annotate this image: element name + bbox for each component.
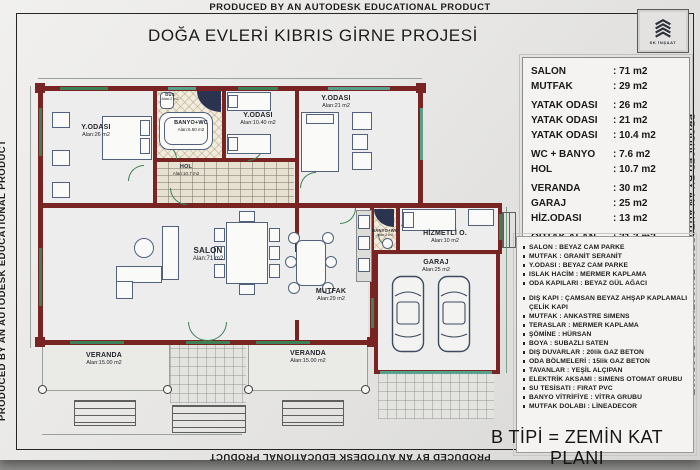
pillow	[228, 137, 238, 151]
chair	[325, 256, 337, 268]
veranda-steps	[74, 400, 136, 426]
table-row: GARAJ: 25 m2	[531, 195, 689, 210]
table-row: MUTFAK: 29 m2	[531, 78, 689, 93]
wall-segment	[222, 86, 226, 162]
chair	[288, 282, 300, 294]
corner-pier	[367, 337, 377, 347]
row-label: MUTFAK	[531, 80, 613, 93]
list-item: ELEKTRİK AKSAMI : SIMENS OTOMAT GRUBU	[522, 375, 689, 384]
room-label-veranda-right: VERANDA Alan:15.00 m2	[268, 350, 348, 364]
row-label: VERANDA	[531, 182, 613, 195]
table-row: YATAK ODASI: 26 m2	[531, 97, 689, 112]
bullet-icon	[523, 342, 525, 344]
row-value: : 7.6 m2	[613, 149, 650, 160]
row-value: : 21 m2	[613, 115, 647, 126]
wall-segment	[496, 253, 500, 373]
pillow	[403, 212, 414, 228]
list-item: DIŞ KAPI : ÇAMSAN BEYAZ AHŞAP KAPLAMALI …	[522, 294, 689, 312]
row-label: HİZ.ODASI	[531, 212, 613, 225]
list-item: ISLAK HACİM : MERMER KAPLAMA	[522, 270, 689, 279]
row-label: GARAJ	[531, 197, 613, 210]
column	[38, 385, 47, 394]
bullet-icon	[523, 387, 525, 389]
row-value: : 30 m2	[613, 183, 647, 194]
list-item: TAVANLAR : YEŞİL ALÇIPAN	[522, 366, 689, 375]
walkway-floor	[170, 345, 246, 403]
side-steps	[502, 212, 516, 248]
garage-door	[380, 371, 492, 374]
veranda-door	[256, 341, 310, 344]
pillow	[228, 95, 238, 108]
table-row: HİZ.ODASI: 13 m2	[531, 210, 689, 225]
window	[420, 108, 423, 160]
dimension-line	[38, 78, 422, 79]
list-item: ODA BÖLMELERİ : 15lik GAZ BETON	[522, 357, 689, 366]
armchair	[52, 150, 70, 166]
corner-pier	[35, 83, 45, 93]
watermark-top: PRODUCED BY AN AUTODESK EDUCATIONAL PROD…	[0, 2, 700, 13]
page-title: DOĞA EVLERİ KIBRIS GİRNE PROJESİ	[138, 26, 488, 46]
wall-segment	[38, 203, 502, 208]
corner-pier	[416, 83, 426, 93]
bullet-icon	[523, 378, 525, 380]
list-item: BANYO VİTRİFİYE : VİTRA GRUBU	[522, 393, 689, 402]
paper-sheet: PRODUCED BY AN AUTODESK EDUCATIONAL PROD…	[0, 0, 700, 460]
bullet-icon	[523, 315, 525, 317]
dimension-line	[42, 434, 242, 435]
chair	[285, 256, 297, 268]
pillow	[140, 120, 150, 136]
specs-group: DIŞ KAPI : ÇAMSAN BEYAZ AHŞAP KAPLAMALI …	[522, 294, 689, 411]
corner-pier	[35, 337, 45, 347]
kitchen-table	[296, 240, 326, 286]
row-label: YATAK ODASI	[531, 114, 613, 127]
armchair	[52, 182, 70, 198]
bullet-icon	[523, 360, 525, 362]
row-value: : 71 m2	[613, 66, 647, 77]
wall-segment	[374, 253, 378, 373]
table-row: HOL: 10.7 m2	[531, 161, 689, 176]
chair	[269, 264, 280, 278]
table-row: YATAK ODASI: 21 m2	[531, 112, 689, 127]
wardrobe	[352, 112, 372, 130]
row-value: : 26 m2	[613, 100, 647, 111]
sofa	[116, 281, 133, 299]
table-row: VERANDA: 30 m2	[531, 180, 689, 195]
room-label-veranda-left: VERANDA Alan:15.00 m2	[64, 352, 144, 366]
wall-segment	[295, 320, 299, 342]
room-label-banyo: BANYO+WC Alan:6.50 m2	[165, 120, 217, 132]
window	[39, 248, 42, 306]
table-row: SALON: 71 m2	[531, 63, 689, 78]
bullet-icon	[523, 405, 525, 407]
chair	[239, 284, 255, 295]
chair	[214, 264, 225, 278]
row-value: : 10.4 m2	[613, 130, 656, 141]
wall-segment	[295, 86, 299, 207]
list-item: SU TESİSATI : FIRAT PVC	[522, 384, 689, 393]
window	[39, 108, 42, 156]
row-value: : 25 m2	[613, 198, 647, 209]
bullet-icon	[523, 282, 525, 284]
stove	[358, 236, 370, 250]
list-item: MUTFAK : ANKASTRE SIMENS	[522, 312, 689, 321]
row-value: : 29 m2	[613, 81, 647, 92]
wardrobe	[352, 134, 368, 150]
driveway-floor	[378, 373, 494, 419]
room-label-hol: HOL Alan:10.7 m2	[160, 164, 212, 176]
column	[244, 385, 253, 394]
bullet-icon	[523, 273, 525, 275]
bullet-icon	[523, 264, 525, 266]
veranda-door	[70, 341, 124, 344]
bullet-icon	[523, 396, 525, 398]
company-logo: SK İNŞAAT	[637, 9, 689, 53]
room-label-banyo2: BANYO+WC Alan:2 m2	[372, 228, 398, 237]
room-label-bedroom3: Y.ODASI Alan:21 m2	[306, 95, 366, 109]
row-value: : 10.7 m2	[613, 164, 656, 175]
room-label-bedroom2: Y.ODASI Alan:10.40 m2	[228, 112, 288, 126]
watermark-left: PRODUCED BY AN AUTODESK EDUCATIONAL PROD…	[0, 115, 8, 445]
appliance	[358, 258, 370, 272]
company-name: SK İNŞAAT	[650, 40, 677, 45]
area-table: SALON: 71 m2 MUTFAK: 29 m2 YATAK ODASI: …	[522, 57, 690, 237]
plan-type-label: B TİPİ = ZEMİN KAT PLANI	[462, 427, 692, 469]
wall-segment	[153, 86, 157, 207]
pillow	[306, 114, 334, 124]
row-label: YATAK ODASI	[531, 129, 613, 142]
row-label: YATAK ODASI	[531, 99, 613, 112]
chair	[322, 232, 334, 244]
bullet-icon	[523, 333, 525, 335]
list-item: Y.ODASI : BEYAZ CAM PARKE	[522, 261, 689, 270]
wardrobe	[468, 209, 494, 226]
car-icon	[390, 274, 426, 354]
wall-segment	[372, 250, 502, 254]
list-item: BOYA : SUBAZLI SATEN	[522, 339, 689, 348]
window	[371, 298, 374, 328]
car-icon	[436, 274, 472, 354]
room-label-salon: SALON Alan:71 m2	[176, 246, 240, 262]
list-item: DIŞ DUVARLAR : 20lik GAZ BETON	[522, 348, 689, 357]
chair	[239, 211, 255, 222]
table-row: WC + BANYO: 7.6 m2	[531, 146, 689, 161]
specs-group: SALON : BEYAZ CAM PARKE MUTFAK : GRANİT …	[522, 243, 689, 288]
list-item: MUTFAK : GRANİT SERANİT	[522, 252, 689, 261]
window	[168, 87, 196, 90]
veranda-steps	[282, 400, 344, 426]
list-item: MUTFAK DOLABI : LİNEADECOR	[522, 402, 689, 411]
room-label-hizmetli: HİZMETLİ O. Alan:10 m2	[402, 230, 488, 244]
bullet-icon	[523, 369, 525, 371]
window	[238, 87, 278, 90]
row-label: HOL	[531, 163, 613, 176]
row-value: : 13 m2	[613, 213, 647, 224]
sink	[382, 238, 393, 249]
chair	[288, 232, 300, 244]
wardrobe	[352, 152, 372, 170]
sink	[358, 215, 370, 229]
dimension-line	[30, 86, 31, 348]
table-row: YATAK ODASI: 10.4 m2	[531, 127, 689, 142]
coffee-table	[134, 238, 154, 258]
specs-list: SALON : BEYAZ CAM PARKE MUTFAK : GRANİT …	[516, 236, 694, 453]
room-label-bedroom1: Y.ODASI Alan:26 m2	[64, 124, 128, 138]
list-item: ŞÖMİNE : HÜRSAN	[522, 330, 689, 339]
list-item: SALON : BEYAZ CAM PARKE	[522, 243, 689, 252]
bullet-icon	[523, 246, 525, 248]
chair	[269, 246, 280, 260]
room-label-mutfak: MUTFAK Alan:29 m2	[300, 288, 362, 302]
room-label-dus: DUŞ Alan:2 m2	[156, 92, 184, 101]
chevrons-icon	[652, 18, 674, 38]
window	[328, 87, 390, 90]
list-item: TERASLAR : MERMER KAPLAMA	[522, 321, 689, 330]
bullet-icon	[523, 351, 525, 353]
chair	[214, 228, 225, 242]
row-label: SALON	[531, 65, 613, 78]
bullet-icon	[523, 297, 525, 299]
bullet-icon	[523, 255, 525, 257]
list-item: ODA KAPILARI : BEYAZ GÜL AĞACI	[522, 279, 689, 288]
column	[163, 385, 172, 394]
bullet-icon	[523, 324, 525, 326]
room-label-garaj: GARAJ Alan:25 m2	[398, 259, 474, 273]
column	[361, 385, 370, 394]
pillow	[140, 138, 150, 154]
window	[60, 87, 108, 90]
chair	[269, 228, 280, 242]
entry-door	[186, 341, 230, 344]
row-label: WC + BANYO	[531, 148, 613, 161]
entry-steps	[172, 405, 246, 433]
